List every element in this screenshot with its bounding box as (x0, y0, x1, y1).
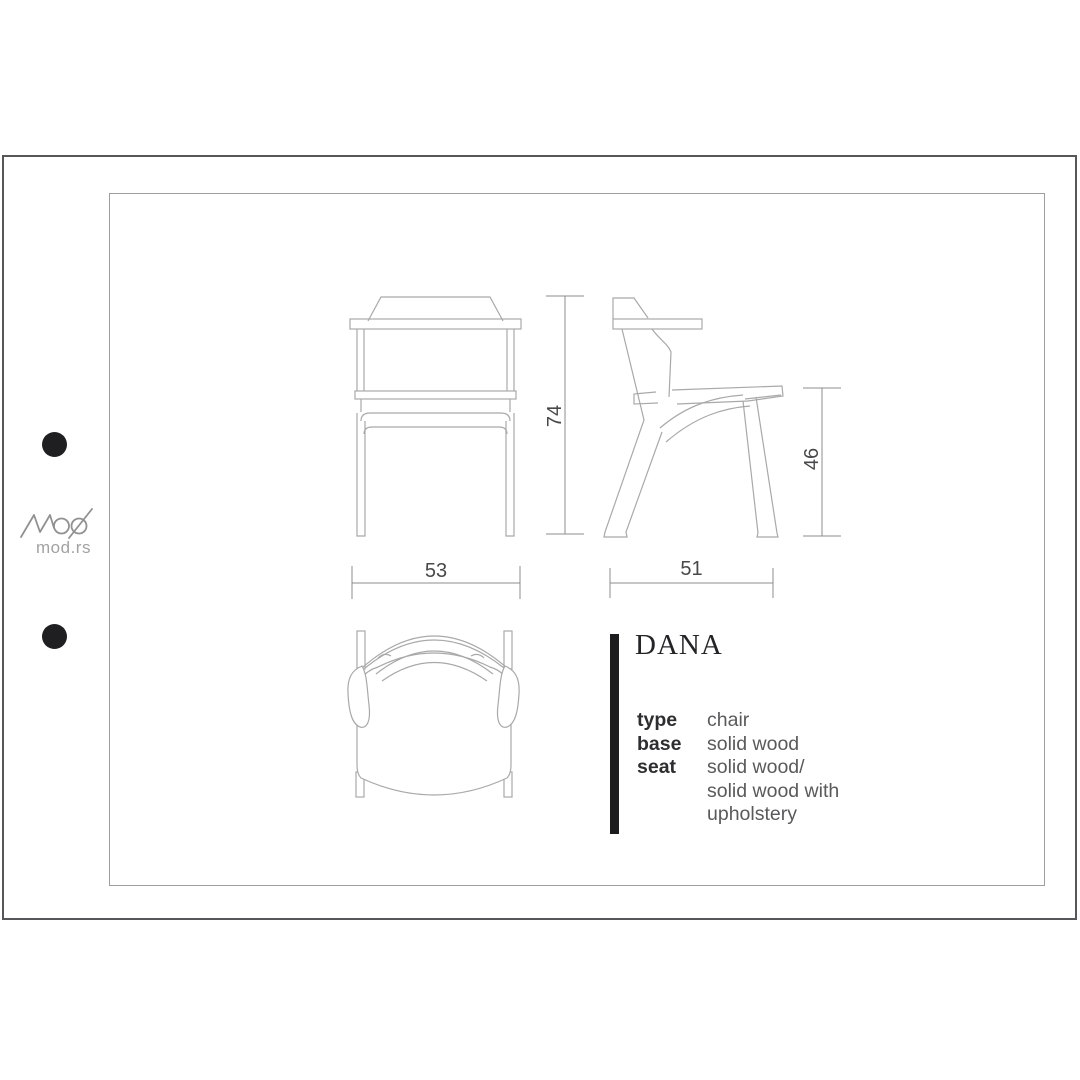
side-view-drawing (604, 298, 783, 537)
title-accent-bar (610, 634, 619, 834)
chair-drawings-svg (0, 0, 1080, 1080)
top-view-drawing (348, 631, 519, 797)
spec-label-seat: seat (637, 756, 707, 827)
dim-label-seat-height: 46 (801, 438, 823, 480)
product-title: DANA (635, 629, 723, 662)
spec-value-seat: solid wood/ solid wood with upholstery (707, 756, 839, 827)
dim-label-front-width: 53 (352, 560, 520, 583)
dim-label-total-height: 74 (544, 395, 566, 437)
dim-label-depth: 51 (610, 558, 773, 581)
spec-label-base: base (637, 733, 707, 757)
spec-sheet-page: mod.rs (0, 0, 1080, 1080)
spec-value-type: chair (707, 709, 839, 733)
spec-table: type chair base solid wood seat solid wo… (637, 709, 839, 827)
dimension-lines (352, 296, 841, 599)
spec-label-type: type (637, 709, 707, 733)
spec-value-base: solid wood (707, 733, 839, 757)
front-view-drawing (350, 297, 521, 536)
